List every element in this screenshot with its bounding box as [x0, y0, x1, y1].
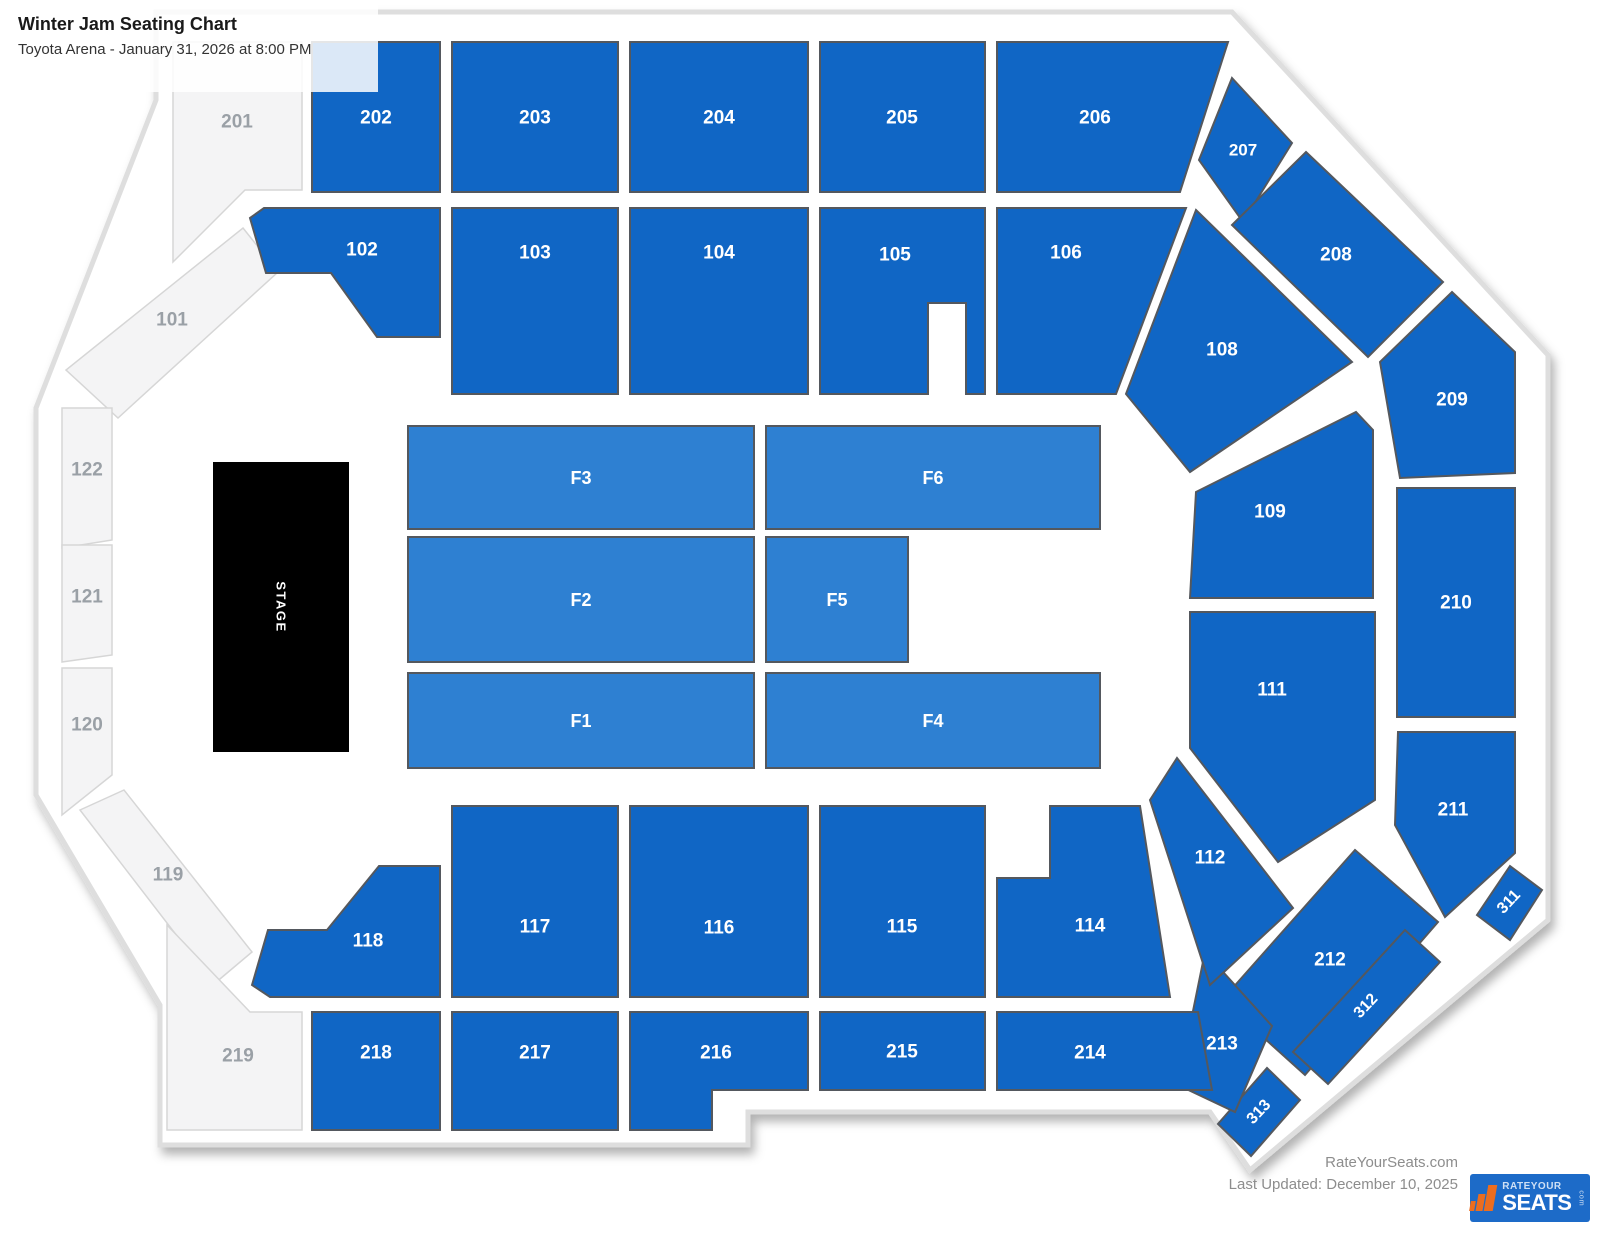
section-204-label: 204	[703, 108, 735, 129]
section-202-label: 202	[360, 108, 392, 129]
section-218[interactable]	[312, 1012, 440, 1130]
section-209-label: 209	[1436, 390, 1468, 411]
section-217[interactable]	[452, 1012, 618, 1130]
section-122-label: 122	[71, 460, 103, 481]
section-213-label: 213	[1206, 1034, 1238, 1055]
footer-credits: RateYourSeats.com Last Updated: December…	[1229, 1152, 1458, 1196]
section-216-label: 216	[700, 1043, 732, 1064]
seating-map: 2011011221211201192192022032042052062072…	[0, 0, 1600, 1235]
section-F4-label: F4	[922, 711, 943, 731]
section-115[interactable]	[820, 806, 985, 997]
section-207-label: 207	[1229, 141, 1257, 160]
section-217-label: 217	[519, 1043, 551, 1064]
logo-text-main: SEATS	[1502, 1192, 1571, 1214]
section-114-label: 114	[1075, 916, 1106, 937]
event-subtitle: Toyota Arena - January 31, 2026 at 8:00 …	[18, 41, 378, 58]
section-215-label: 215	[886, 1042, 918, 1063]
section-103-label: 103	[519, 243, 551, 264]
section-111-label: 111	[1257, 680, 1287, 701]
section-208-label: 208	[1320, 245, 1352, 266]
section-104[interactable]	[630, 208, 808, 394]
rateyourseats-logo[interactable]: RATEYOUR SEATS com	[1470, 1174, 1590, 1222]
section-118-label: 118	[353, 931, 384, 952]
footer-updated-text: Last Updated: December 10, 2025	[1229, 1174, 1458, 1196]
section-212-label: 212	[1314, 950, 1346, 971]
section-117[interactable]	[452, 806, 618, 997]
section-F2-label: F2	[570, 590, 591, 610]
page-title: Winter Jam Seating Chart	[18, 14, 378, 35]
section-117-label: 117	[520, 917, 551, 938]
section-121-label: 121	[71, 587, 103, 608]
chart-header: Winter Jam Seating Chart Toyota Arena - …	[0, 0, 378, 92]
section-211-label: 211	[1438, 800, 1469, 821]
section-210-label: 210	[1440, 593, 1472, 614]
section-116[interactable]	[630, 806, 808, 997]
section-STAGE-label: STAGE	[274, 581, 289, 632]
section-104-label: 104	[703, 243, 735, 264]
section-201-label: 201	[221, 112, 253, 133]
section-F3-label: F3	[570, 468, 591, 488]
section-103[interactable]	[452, 208, 618, 394]
section-219-label: 219	[222, 1046, 254, 1067]
section-218-label: 218	[360, 1043, 392, 1064]
section-203-label: 203	[519, 108, 551, 129]
section-109-label: 109	[1254, 502, 1286, 523]
section-108-label: 108	[1206, 340, 1238, 361]
section-120-label: 120	[71, 715, 103, 736]
footer-site-text: RateYourSeats.com	[1229, 1152, 1458, 1174]
section-102-label: 102	[346, 240, 378, 261]
section-214-label: 214	[1074, 1043, 1106, 1064]
logo-text-suffix: com	[1578, 1190, 1585, 1206]
section-205-label: 205	[886, 108, 918, 129]
seating-chart-canvas: 2011011221211201192192022032042052062072…	[0, 0, 1600, 1235]
section-116-label: 116	[704, 918, 735, 939]
section-101-label: 101	[156, 310, 188, 331]
section-105-label: 105	[879, 245, 911, 266]
sections-group: 2011011221211201192192022032042052062072…	[62, 42, 1542, 1156]
logo-bars-icon	[1470, 1185, 1497, 1211]
logo-text: RATEYOUR SEATS	[1502, 1182, 1571, 1214]
section-F5-label: F5	[826, 590, 847, 610]
section-119-label: 119	[153, 865, 184, 886]
section-F1-label: F1	[570, 711, 591, 731]
section-115-label: 115	[887, 917, 918, 938]
section-F6-label: F6	[922, 468, 943, 488]
section-106-label: 106	[1050, 243, 1082, 264]
section-112-label: 112	[1195, 848, 1226, 869]
section-206-label: 206	[1079, 108, 1111, 129]
